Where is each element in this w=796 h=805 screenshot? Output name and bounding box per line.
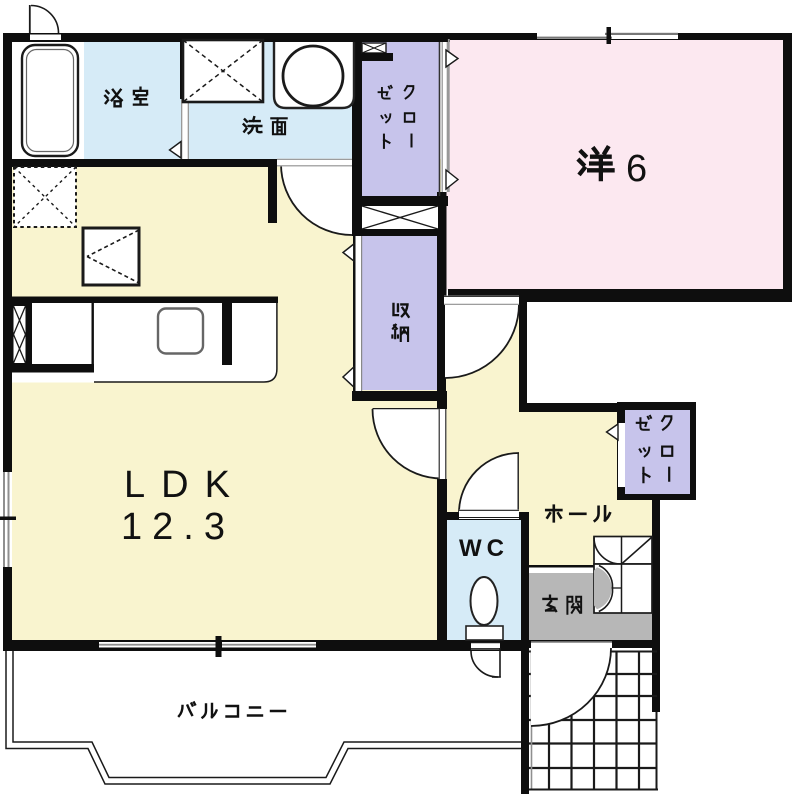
svg-text:12.3: 12.3 <box>121 506 235 548</box>
svg-text:LDK: LDK <box>124 464 246 506</box>
svg-text:6: 6 <box>626 148 647 190</box>
svg-text:WC: WC <box>459 535 509 562</box>
